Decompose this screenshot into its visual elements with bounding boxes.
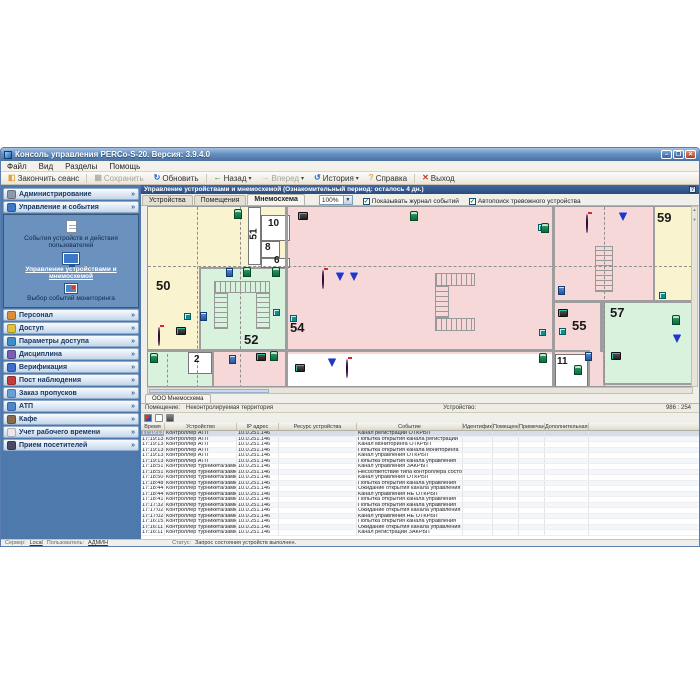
user-value: АДМИН [88,540,108,546]
chevron-down-icon: ▼ [343,196,352,204]
verification-icon [7,363,16,372]
exit-icon: ✕ [422,174,429,182]
log-cell: 10.0.251.146 [237,503,279,508]
log-cell: Канал управления НЕ ОТКРЫТ [357,492,463,497]
log-cell [545,530,589,535]
log-cell [463,486,493,491]
sidebar-section-label: Кафе [19,416,37,423]
log-cell: Канал управления НЕ ОТКРЫТ [357,514,463,519]
log-cell: Канал управления ОТКРЫТ [357,453,463,458]
log-cell: 17:17:02 [141,508,165,513]
status-value: Запрос состояния устройств выполнен. [195,540,296,546]
log-cell [279,453,357,458]
log-cell: Несоответствие типа контроллера состояни… [357,470,463,475]
chevron-double-icon: » [131,338,135,345]
clear-log-icon[interactable] [155,414,163,422]
room-number-label: 8 [265,243,271,253]
log-cell: Контроллер АТП [165,459,237,464]
log-cell: 10.0.251.146 [237,459,279,464]
map-dashed-line [240,354,241,387]
log-cell [279,519,357,524]
log-cell: 17:18:50 [141,475,165,480]
door-icon[interactable] [659,292,666,299]
chevron-double-icon: » [131,390,135,397]
log-cell [519,508,545,513]
map-wall [285,207,288,387]
log-cell [493,448,519,453]
log-cell [519,459,545,464]
reader-icon[interactable] [585,352,592,361]
room-number-label: 2 [194,355,200,365]
log-cell: Попытка открытия канала управления [357,459,463,464]
log-cell: Попытка открытия канала управления [357,497,463,502]
log-cell [493,530,519,535]
log-cell [279,442,357,447]
sidebar-section-6[interactable]: Верификация» [3,361,139,373]
room-value: Неконтролируемая территория [186,405,273,411]
log-column-header[interactable]: Время [141,423,165,430]
door-icon[interactable] [184,313,191,320]
room-number-label: 59 [657,211,671,224]
app-window: Консоль управления PERCo-S-20. Версия: 3… [0,147,700,547]
log-cell [545,437,589,442]
sidebar-section-label: АТП [19,403,33,410]
log-cell [545,431,589,436]
turnstile-icon[interactable] [672,315,680,325]
log-cell: 17:19:13 [141,437,165,442]
room-label: Помещение: [145,405,180,411]
cafe-icon [7,415,16,424]
camera-icon[interactable] [673,335,681,343]
log-cell: Ожидание открытия канала управления [357,508,463,513]
door-icon[interactable] [539,329,546,336]
pass-card-icon [7,389,16,398]
log-cell: Контроллер АТП [165,442,237,447]
camera-icon[interactable] [336,273,344,281]
sidebar-section-10[interactable]: Кафе» [3,413,139,425]
chevron-double-icon: » [131,403,135,410]
reader-icon[interactable] [226,268,233,277]
reader-icon[interactable] [200,312,207,321]
stair-segment [256,293,270,329]
toolbar-button-6[interactable]: ?Справка [364,172,412,184]
log-cell: 10.0.251.146 [237,437,279,442]
map-vertical-scrollbar[interactable]: ▲▼ [691,206,698,387]
panel-title: Управление устройствами и мнемосхемой (О… [144,186,424,193]
log-cell: Попытка открытия канала регистрации [357,437,463,442]
log-cell [519,481,545,486]
room-number-label: 51 [250,228,260,239]
toolbar-button-0[interactable]: ◧Закончить сеанс [3,172,84,184]
sidebar-section-8[interactable]: Заказ пропусков» [3,387,139,399]
refresh-icon: ↻ [154,174,161,182]
log-cell [279,464,357,469]
clock-icon [7,428,16,437]
door-icon[interactable] [559,328,566,335]
event-log-icon[interactable] [144,414,152,422]
sidebar-section-12[interactable]: Прием посетителей» [3,439,139,451]
log-cell: 10.0.251.146 [237,431,279,436]
map-wall [552,300,693,303]
log-cell: 17:16:11 [141,530,165,535]
turnstile-icon[interactable] [574,365,582,375]
stair-segment [595,246,613,292]
log-cell [463,514,493,519]
log-cell: Контроллер турникета/замка [165,508,237,513]
chevron-double-icon: » [131,204,135,211]
sidebar-section-1[interactable]: Управление и события» [3,201,139,213]
sidebar-section-5[interactable]: Дисциплина» [3,348,139,360]
log-cell: Контроллер турникета/замка [165,530,237,535]
log-cell [279,437,357,442]
room-number-label: 11 [557,357,568,367]
sidebar-section-4[interactable]: Параметры доступа» [3,335,139,347]
map-wall [212,352,214,387]
log-column-header[interactable]: Дополнительная информация [545,423,589,430]
log-cell [493,503,519,508]
log-cell: 17:18:44 [141,486,165,491]
log-cell [493,470,519,475]
sidebar-section-7[interactable]: Пост наблюдения» [3,374,139,386]
sidebar-section-label: Персонал [19,312,53,319]
log-cell: Контроллер турникета/замка [165,470,237,475]
log-cell [493,497,519,502]
scroll-thumb[interactable] [149,389,269,393]
back-icon: ← [214,174,222,182]
log-cell [545,459,589,464]
log-cell [519,519,545,524]
device-icon[interactable] [611,352,621,360]
staircase [214,281,270,329]
staircase [435,273,475,331]
log-cell: 10.0.251.146 [237,470,279,475]
sidebar-section-9[interactable]: АТП» [3,400,139,412]
map-horizontal-scrollbar[interactable] [147,387,693,394]
dome-icon[interactable] [322,270,324,289]
chevron-double-icon: » [131,377,135,384]
sidebar-section-label: Заказ пропусков [19,390,77,397]
sidebar-nav: Администрирование»Управление и события»С… [1,185,141,539]
menu-item-2[interactable]: Разделы [59,162,103,171]
toolbar-button-7[interactable]: ✕Выход [417,172,460,184]
log-toolbar [141,413,699,423]
sidebar-item-2[interactable]: Выбор событий мониторинга [5,282,137,304]
log-cell: Контроллер АТП [165,453,237,458]
zoom-select[interactable]: 100%▼ [319,195,353,205]
log-cell [493,431,519,436]
toolbar-button-label: Выход [431,174,455,183]
log-column-header[interactable]: Помещение [493,423,519,430]
stair-segment [435,318,475,331]
toolbar-button-label: Обновить [162,174,198,183]
sidebar-item-1[interactable]: Управление устройствами и мнемосхемой [5,251,137,282]
door-icon[interactable] [290,315,297,322]
minimize-button[interactable]: – [661,150,672,159]
log-cell: 17:19:13 [141,453,165,458]
device-icon[interactable] [558,309,568,317]
sidebar-section-0[interactable]: Администрирование» [3,188,139,200]
log-cell [545,453,589,458]
log-cell: Контроллер турникета/замка [165,475,237,480]
sidebar-item-label: Выбор событий мониторинга [27,295,115,302]
dome-icon[interactable] [158,327,160,346]
log-cell [519,470,545,475]
server-label: Сервер: [5,540,26,546]
log-cell [463,508,493,513]
log-cell [545,514,589,519]
sidebar-section-label: Параметры доступа [19,338,89,345]
log-cell [519,514,545,519]
door-icon[interactable] [273,309,280,316]
log-cell [519,530,545,535]
log-cell: 10.0.251.146 [237,492,279,497]
log-cell [463,475,493,480]
log-cell: Канал мониторинга ОТКРЫТ [357,442,463,447]
log-cell [279,475,357,480]
checkbox-label: Показывать журнал событий [372,198,459,205]
device-icon[interactable] [295,364,305,372]
log-cell: 10.0.251.146 [237,475,279,480]
sidebar-section-label: Доступ [19,325,44,332]
log-cell: 17:19:13 [141,431,165,436]
log-cell [493,437,519,442]
log-cell: Попытка открытия канала управления [357,481,463,486]
log-cell: 10.0.251.146 [237,448,279,453]
toolbar-button-4: →Вперед▾ [257,172,310,184]
dome-icon[interactable] [346,359,348,378]
log-column-header[interactable]: Примечание [519,423,545,430]
room-number-label: 55 [572,319,586,332]
map-dashed-line [604,207,605,387]
device-icon[interactable] [298,212,308,220]
discipline-icon [7,350,16,359]
turnstile-icon[interactable] [539,353,547,363]
log-cell [463,437,493,442]
log-column-header[interactable]: Ресурс устройства [279,423,357,430]
log-cell [545,448,589,453]
camera-icon[interactable] [328,359,336,367]
toolbar-button-label: Сохранить [104,174,144,183]
toolbar-button-label: Закончить сеанс [18,174,80,183]
log-cell: Канал управления ЗАКРЫТ [357,464,463,469]
log-cell [519,448,545,453]
log-cell: 10.0.251.146 [237,481,279,486]
log-cell [519,464,545,469]
log-cell [519,525,545,530]
log-cell [545,486,589,491]
panel-help-icon[interactable]: ? [689,186,696,193]
device-icon[interactable] [256,353,266,361]
turnstile-icon[interactable] [270,351,278,361]
log-cell [519,475,545,480]
chevron-down-icon: ▾ [301,175,304,182]
toolbar-separator [414,174,415,183]
tab-2[interactable]: Мнемосхема [247,194,304,205]
log-cell: 10.0.251.146 [237,442,279,447]
chevron-double-icon: » [131,364,135,371]
sidebar-section-3[interactable]: Доступ» [3,322,139,334]
checkbox-label: Автопоиск тревожного устройства [478,198,581,205]
chevron-double-icon: » [131,191,135,198]
log-cell [463,503,493,508]
log-cell: 17:18:51 [141,470,165,475]
log-cell [493,486,519,491]
maximize-button[interactable]: ❐ [673,150,684,159]
log-cell [279,525,357,530]
log-cell: 10.0.251.146 [237,453,279,458]
menu-item-1[interactable]: Вид [33,162,59,171]
log-cell [519,431,545,436]
stair-segment [435,273,475,286]
turnstile-icon[interactable] [272,267,280,277]
log-cell [463,519,493,524]
chevron-down-icon: ▾ [356,175,359,182]
key-icon [7,324,16,333]
sidebar-item-0[interactable]: События устройств и действия пользовател… [5,218,137,251]
log-cell [279,497,357,502]
gear-icon [7,190,16,199]
log-cell [463,530,493,535]
chevron-double-icon: » [131,429,135,436]
log-cell [493,481,519,486]
mnemoscheme-map[interactable]: 505254555759511086211 [147,206,693,387]
tab-1[interactable]: Помещения [194,195,247,205]
log-cell [279,492,357,497]
log-cell [545,503,589,508]
turnstile-icon[interactable] [150,353,158,363]
chevron-down-icon: ▾ [249,175,252,182]
printer-icon[interactable] [166,414,174,422]
log-column-header[interactable]: Устройство [165,423,237,430]
toolbar-button-label: Назад [224,174,247,183]
log-cell: Попытка открытия канала управления [357,503,463,508]
log-cell [493,514,519,519]
log-column-header[interactable]: IP адрес [237,423,279,430]
menu-item-0[interactable]: Файл [1,162,33,171]
toolbar-button-5[interactable]: ↺История▾ [309,172,364,184]
log-cell [545,508,589,513]
log-cell [279,514,357,519]
server-value: Local [30,540,43,546]
log-row[interactable]: 17:16:11Контроллер турникета/замка10.0.2… [141,530,699,536]
toolbar-button-label: История [323,174,354,183]
turnstile-icon[interactable] [541,223,549,233]
menu-item-3[interactable]: Помощь [103,162,146,171]
log-column-header[interactable]: Идентификатор [463,423,493,430]
forward-icon: → [262,174,270,182]
sidebar-section-2[interactable]: Персонал» [3,309,139,321]
log-cell [519,453,545,458]
log-cell [279,459,357,464]
sidebar-item-label: События устройств и действия пользовател… [6,235,136,249]
log-cell: 17:19:13 [141,442,165,447]
help-icon: ? [369,174,374,182]
device-icon[interactable] [176,327,186,335]
camera-icon[interactable] [350,273,358,281]
log-cell [493,519,519,524]
log-cell [279,530,357,535]
log-cell: Контроллер турникета/замка [165,481,237,486]
log-cell [545,464,589,469]
user-label: Пользователь: [47,540,84,546]
dome-icon[interactable] [586,214,588,233]
stair-segment [214,281,270,293]
log-cell [545,492,589,497]
log-cell [463,448,493,453]
log-cell [279,470,357,475]
scheme-tab-bar: ООО Мнемосхема [141,394,699,404]
tab-0[interactable]: Устройства [142,195,193,205]
log-cell [279,503,357,508]
sidebar-section-11[interactable]: Учет рабочего времени» [3,426,139,438]
chevron-double-icon: » [131,351,135,358]
zoom-value: 100% [322,197,339,204]
log-cell: Контроллер турникета/замка [165,514,237,519]
log-cell: Попытка открытия канала мониторинга [357,448,463,453]
reader-icon[interactable] [558,286,565,295]
save-icon: ▦ [94,174,102,182]
sidebar-section-label: Верификация [19,364,67,371]
events-log-icon [66,220,77,233]
log-cell: Контроллер турникета/замка [165,525,237,530]
log-cell [463,481,493,486]
turnstile-icon[interactable] [410,211,418,221]
checkbox-0[interactable]: ✓Показывать журнал событий [363,198,459,205]
log-cell [493,459,519,464]
scheme-tab[interactable]: ООО Мнемосхема [145,394,211,403]
turnstile-icon[interactable] [234,209,242,219]
log-cell [493,508,519,513]
stair-segment [435,286,449,318]
room-number-label: 10 [268,219,279,229]
log-cell [493,475,519,480]
close-button[interactable]: ✕ [685,150,696,159]
toolbar-button-3[interactable]: ←Назад▾ [209,172,257,184]
log-cell [519,492,545,497]
map-room [285,354,552,387]
log-cell: 17:16:15 [141,519,165,524]
toolbar: ◧Закончить сеанс▦Сохранить↻Обновить←Наза… [1,172,699,185]
log-cell: Контроллер турникета/замка [165,464,237,469]
staircase [595,246,613,292]
log-cell: Ожидание открытия канала управления [357,486,463,491]
log-cell [463,442,493,447]
globe-key-icon [7,337,16,346]
log-column-header[interactable]: Событие [357,423,463,430]
log-cell [545,442,589,447]
chevron-double-icon: » [131,325,135,332]
view-tabs: УстройстваПомещенияМнемосхема100%▼✓Показ… [141,194,699,206]
reader-icon[interactable] [229,355,236,364]
log-cell [493,453,519,458]
log-cell: 17:17:02 [141,514,165,519]
stair-segment [214,293,228,329]
log-cell [519,497,545,502]
checkbox-1[interactable]: ✓Автопоиск тревожного устройства [469,198,581,205]
camera-icon[interactable] [619,213,627,221]
log-cell [279,508,357,513]
toolbar-button-2[interactable]: ↻Обновить [149,172,204,184]
log-cell: Контроллер турникета/замка [165,503,237,508]
person-icon [7,311,16,320]
sidebar-section-label: Пост наблюдения [19,377,81,384]
log-cell [545,525,589,530]
log-cell: Контроллер турникета/замка [165,492,237,497]
turnstile-icon[interactable] [243,267,251,277]
log-cell [493,525,519,530]
log-cell: Контроллер АТП [165,437,237,442]
device-label: Устройство: [443,405,476,411]
